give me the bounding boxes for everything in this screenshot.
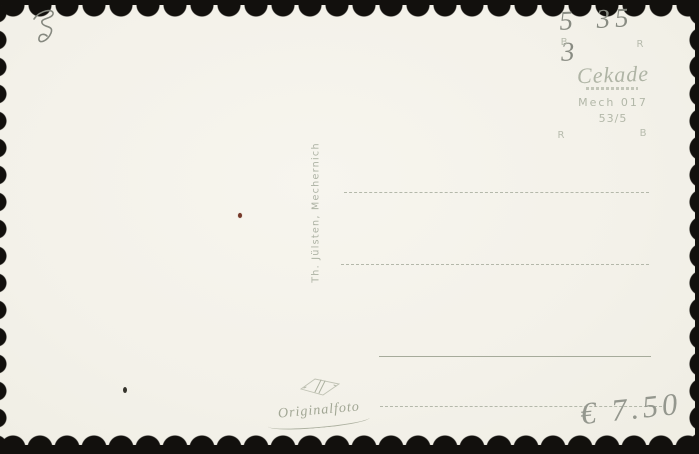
pencil-squiggle-mark [28,7,68,51]
cekade-logo-subline [586,87,638,90]
paper-speck-red [238,213,242,218]
deckle-edge-left [0,0,9,454]
stamp-box-corner-bottom-left: R [555,130,567,141]
publisher-credit-vertical: Th. Jülsten, Mechernich [311,137,324,289]
address-line-2 [341,264,649,265]
handwritten-catalog-number: 5 35 3 [558,0,671,68]
series-number: 53/5 [575,112,651,125]
paper-speck-dark [123,387,127,393]
stamp-box-corner-top-left: B [558,37,570,48]
address-line-3 [379,356,651,357]
publisher-code: Mech 017 [575,96,651,109]
stamp-box-corner-bottom-right: B [637,128,649,139]
cekade-logo: Cekade [572,61,655,90]
deckle-edge-bottom [0,430,699,454]
address-line-1 [344,192,649,193]
stamp-box-corner-top-right: R [634,39,646,50]
printer-monogram-icon [298,376,342,398]
postcard-scan: 5 35 3 B R R B Cekade Mech 017 53/5 Th. … [0,0,699,454]
